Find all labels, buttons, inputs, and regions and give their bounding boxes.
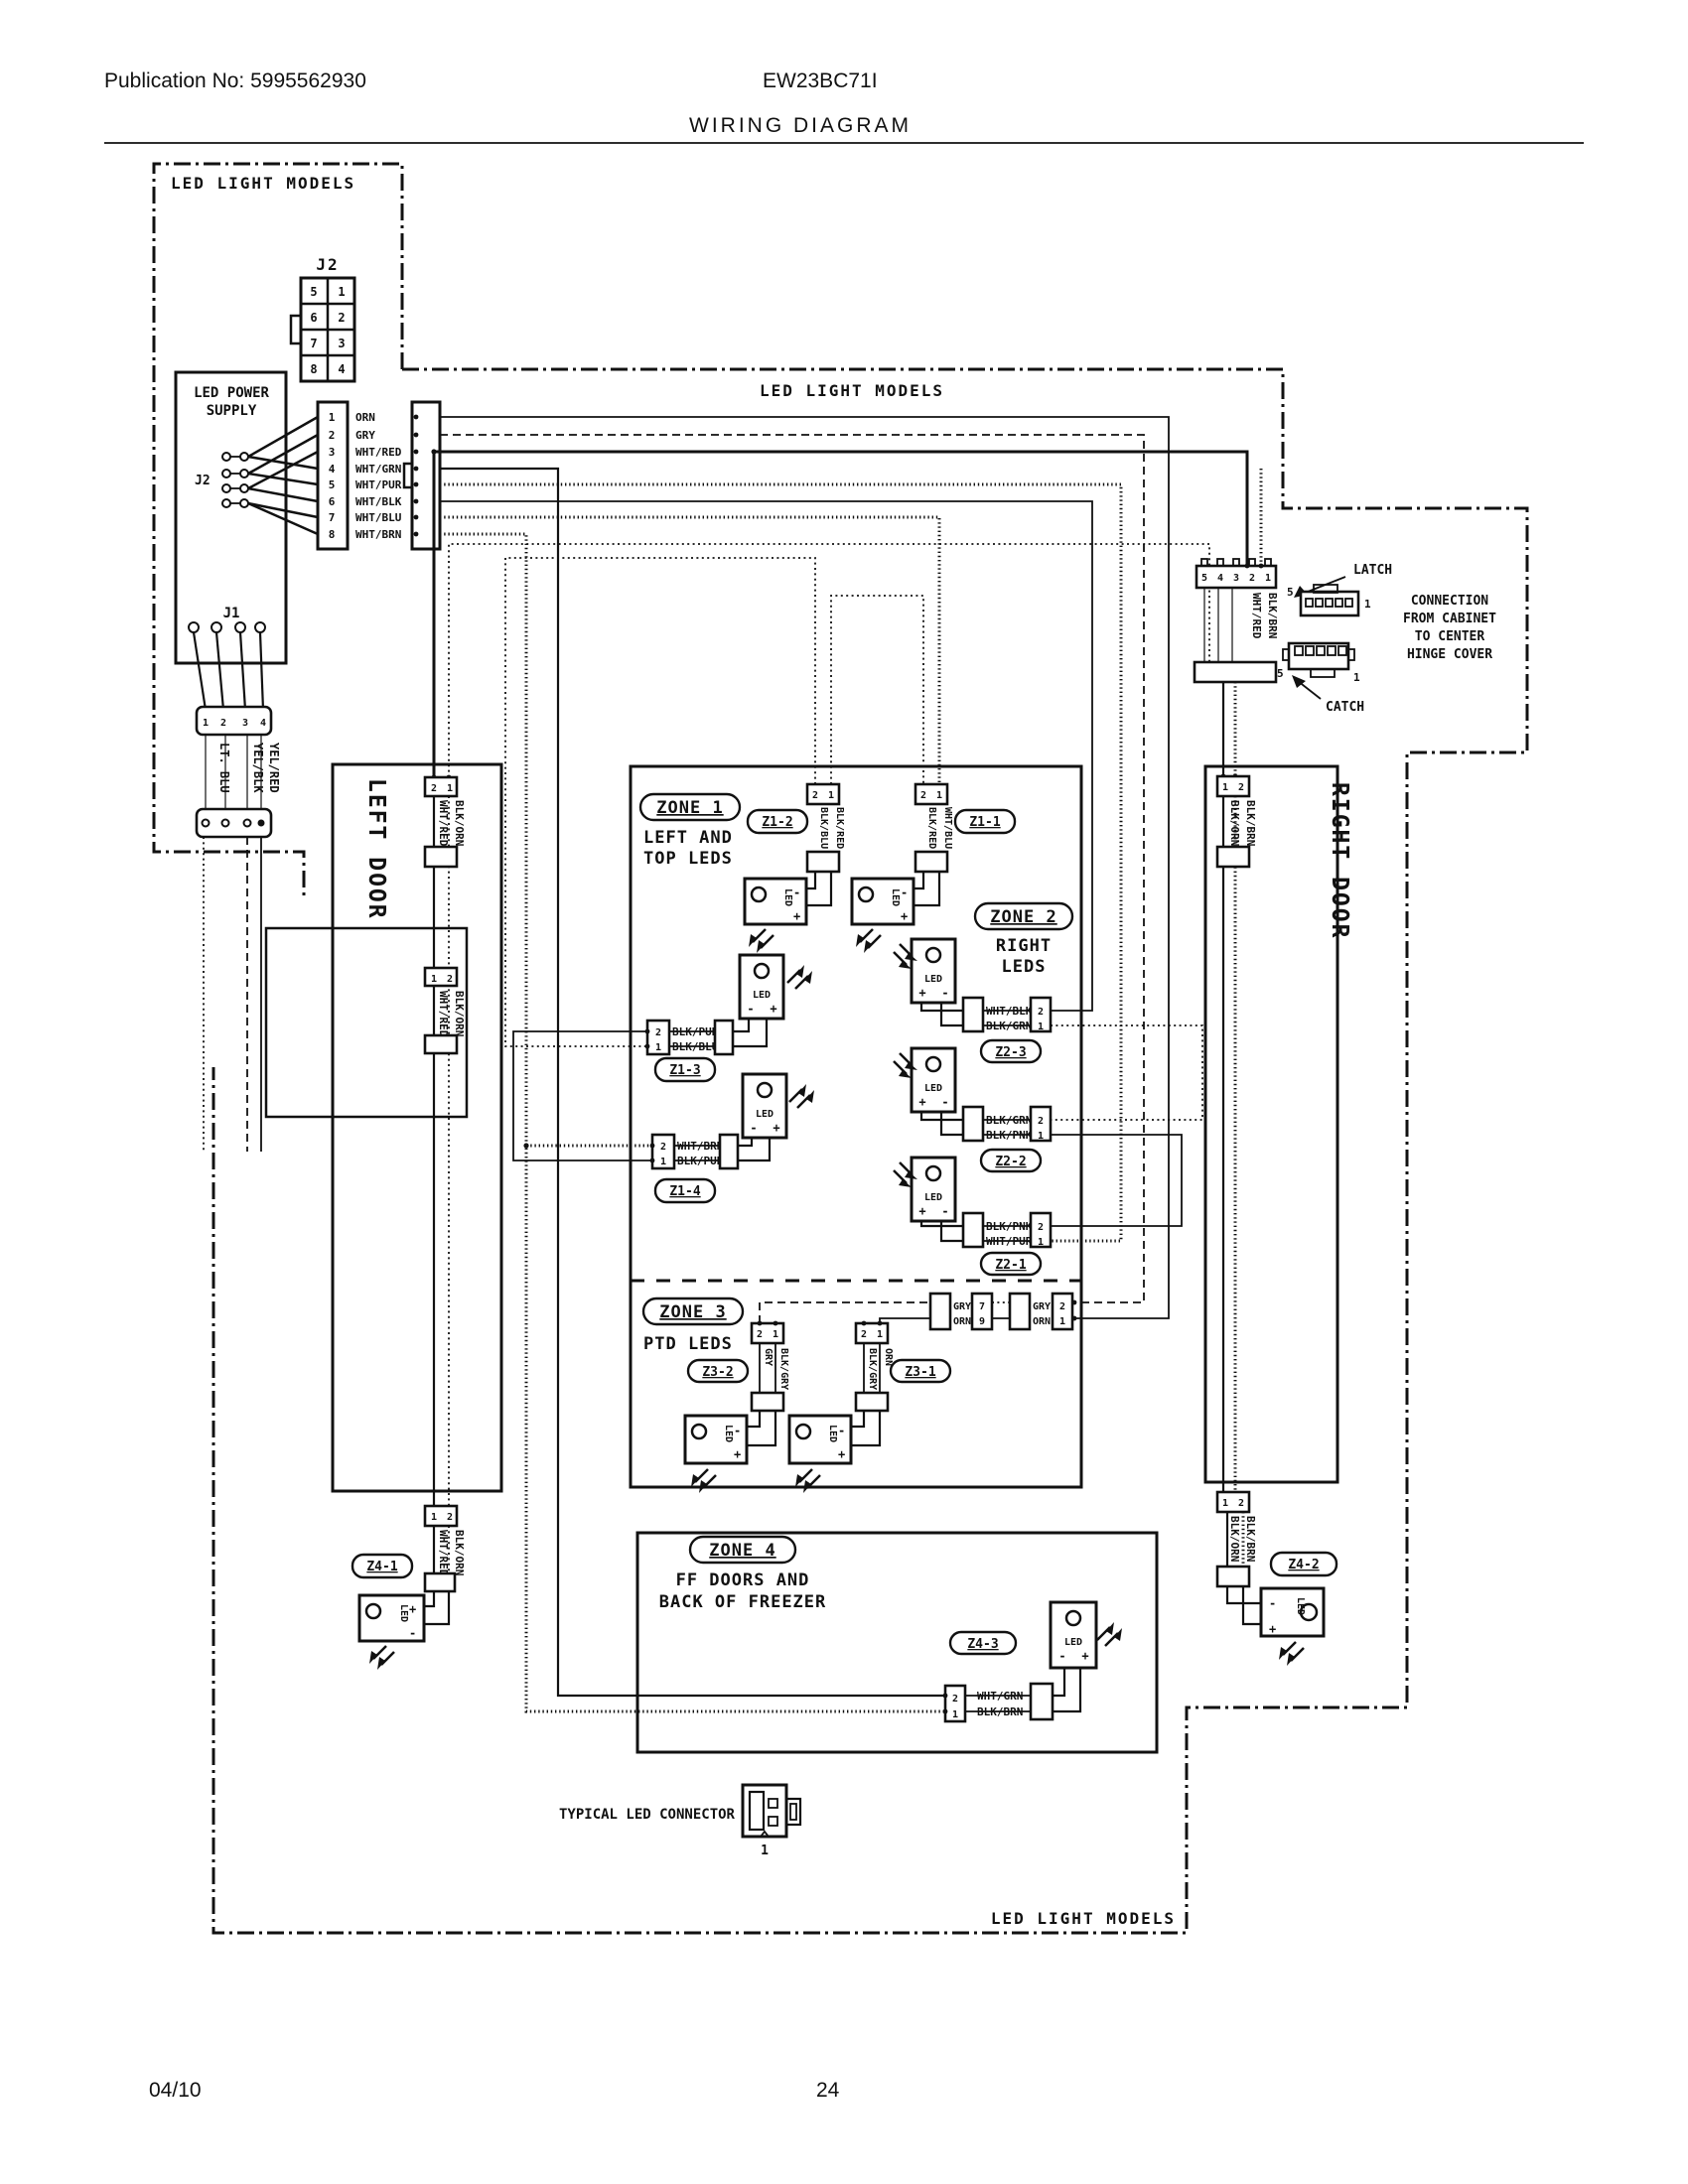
led-indicator-circle xyxy=(1066,1611,1080,1625)
connector-wire: BLK/BRN xyxy=(1244,1516,1257,1562)
led-minus: - xyxy=(941,1204,948,1218)
connector-id: Z1-2 xyxy=(762,815,792,830)
strip-pin: 8 xyxy=(329,528,336,541)
led-indicator-circle xyxy=(752,887,766,901)
connector-pin: 1 xyxy=(773,1329,778,1340)
supply-output-strip: 1 2 3 4 5 6 7 8 ORN GRY WHT/RED WHT/GRN … xyxy=(318,402,440,549)
j2-table-label: J2 xyxy=(316,255,339,274)
j1-wire-name: YEL/RED xyxy=(267,743,281,793)
connector-pin: 2 xyxy=(1238,1498,1244,1509)
connector-pin: 2 xyxy=(660,1142,666,1153)
supply-harness-wires xyxy=(431,417,1247,1711)
zone2-title: ZONE 2 RIGHT LEDS xyxy=(975,903,1072,977)
catch-label: CATCH xyxy=(1326,700,1364,715)
connector-wire: BLK/PNK xyxy=(986,1220,1033,1233)
led-indicator-circle xyxy=(926,1166,940,1180)
j1-wire-name: LT. BLU xyxy=(217,743,231,793)
page-title: WIRING DIAGRAM xyxy=(689,114,912,137)
j2-connector-table: J2 5 1 6 2 7 3 8 4 xyxy=(291,255,354,381)
footer-date: 04/10 xyxy=(149,2079,202,2102)
latch-pin1: 1 xyxy=(1364,598,1371,611)
connector-wire: WHT/BLK xyxy=(986,1005,1033,1018)
link-wires xyxy=(449,544,1209,1323)
led-indicator-circle xyxy=(796,1425,810,1438)
led-text: LED xyxy=(723,1425,734,1442)
led-text: LED xyxy=(398,1604,409,1622)
led-assembly-z2-2: LED + - BLK/GRN BLK/PNK 2 1 Z2-2 xyxy=(894,1048,1051,1171)
j2-cell: 6 xyxy=(310,311,317,325)
svg-text:ZONE 2: ZONE 2 xyxy=(990,907,1056,927)
connector-pin: 1 xyxy=(1038,1237,1044,1248)
connector-pin: 1 xyxy=(1222,1498,1228,1509)
connector-pin: 2 xyxy=(655,1027,661,1038)
led-assembly-z4-1: 1 2 WHT/RED BLK/ORN LED + - Z4-1 xyxy=(352,1506,466,1670)
connector-pin: 9 xyxy=(979,1316,985,1327)
region-label-top-center: LED LIGHT MODELS xyxy=(760,381,944,400)
connector-pin: 1 xyxy=(1038,1131,1044,1142)
connector-wire: BLK/PNK xyxy=(986,1129,1033,1142)
connector-wire: WHT/RED xyxy=(437,800,450,847)
connector-id: Z2-2 xyxy=(995,1155,1026,1169)
j2-cell: 4 xyxy=(338,362,345,376)
latch-pin5: 5 xyxy=(1287,586,1294,599)
region-label-top-left: LED LIGHT MODELS xyxy=(171,174,355,193)
ground-icon xyxy=(856,929,881,953)
connector-wire: BLK/RED xyxy=(926,807,937,849)
svg-text:FF DOORS AND: FF DOORS AND xyxy=(676,1570,810,1590)
hinge-pin: 4 xyxy=(1217,573,1223,584)
wire-name: WHT/GRN xyxy=(355,463,401,476)
led-text: LED xyxy=(924,1083,942,1094)
led-text: LED xyxy=(827,1425,838,1442)
connector-id: Z1-3 xyxy=(669,1063,700,1078)
typical-connector-pin: 1 xyxy=(761,1843,769,1858)
connector-pin: 1 xyxy=(660,1157,666,1167)
j1-pin: 1 xyxy=(203,718,209,729)
led-plus: + xyxy=(918,1204,925,1218)
ground-icon xyxy=(691,1469,716,1493)
led-assembly-z1-2: 2 1 BLK/BLU BLK/RED LED - + Z1-2 xyxy=(745,784,845,953)
left-door: LEFT DOOR 2 1 WHT/RED BLK/ORN 1 2 WHT/RE… xyxy=(266,764,501,1506)
wire-name: WHT/BLU xyxy=(355,511,402,524)
led-indicator-circle xyxy=(366,1604,380,1618)
connector-wire: GRY xyxy=(953,1301,971,1312)
connector-pin: 1 xyxy=(936,790,942,801)
svg-text:ZONE 1: ZONE 1 xyxy=(656,798,723,818)
ground-icon xyxy=(894,1053,917,1078)
strip-pin: 2 xyxy=(329,429,336,442)
connector-pin: 2 xyxy=(1038,1007,1044,1018)
connector-wire: WHT/RED xyxy=(437,1530,450,1576)
led-minus: - xyxy=(409,1626,416,1640)
led-indicator-circle xyxy=(859,887,873,901)
right-door: RIGHT DOOR 1 2 BLK/ORN BLK/BRN xyxy=(1205,766,1352,1492)
svg-text:RIGHT: RIGHT xyxy=(996,936,1052,956)
connector-pin: 1 xyxy=(655,1042,661,1053)
zone4: ZONE 4 FF DOORS AND BACK OF FREEZER Z4-3… xyxy=(637,1533,1157,1752)
connector-wire: BLK/GRN xyxy=(986,1020,1032,1032)
led-minus: - xyxy=(793,886,800,899)
led-plus: + xyxy=(409,1602,416,1616)
connector-pin: 1 xyxy=(877,1329,883,1340)
led-minus: - xyxy=(838,1424,845,1437)
led-minus: - xyxy=(941,986,948,1000)
svg-text:ZONE 3: ZONE 3 xyxy=(659,1302,726,1322)
connector-wire: GRY xyxy=(763,1348,774,1366)
led-indicator-circle xyxy=(692,1425,706,1438)
connector-pin: 2 xyxy=(447,1512,453,1523)
connector-pin: 1 xyxy=(1059,1316,1065,1327)
svg-text:HINGE COVER: HINGE COVER xyxy=(1407,647,1492,662)
svg-text:PTD LEDS: PTD LEDS xyxy=(643,1334,733,1354)
hinge-wire-name: BLK/BRN xyxy=(1266,593,1279,638)
connector-pin: 2 xyxy=(757,1329,763,1340)
strip-pin: 1 xyxy=(329,411,336,424)
j2-cell: 3 xyxy=(338,337,345,350)
connector-wire: BLK/ORN xyxy=(453,800,466,846)
connector-id: Z4-3 xyxy=(967,1637,998,1652)
led-text: LED xyxy=(924,1192,942,1203)
j2-pins-label: J2 xyxy=(195,474,211,488)
connector-id: Z1-1 xyxy=(969,815,1000,830)
led-minus: - xyxy=(901,886,908,899)
j1-wire-name: YEL/BLK xyxy=(251,743,265,793)
connector-wire: BLK/GRY xyxy=(778,1348,789,1390)
footer-page-number: 24 xyxy=(816,2079,840,2102)
wire-name: GRY xyxy=(355,429,375,442)
svg-text:BACK OF FREEZER: BACK OF FREEZER xyxy=(659,1592,827,1612)
harness-pin-dots xyxy=(414,415,419,537)
led-indicator-circle xyxy=(755,964,769,978)
power-supply-title2: SUPPLY xyxy=(207,403,257,419)
connector-pin: 1 xyxy=(431,1512,437,1523)
left-door-label: LEFT DOOR xyxy=(363,778,389,920)
connector-pin: 2 xyxy=(1238,782,1244,793)
j1-pin-circles xyxy=(189,622,265,632)
connector-pin: 2 xyxy=(952,1694,958,1705)
strip-pin: 4 xyxy=(329,463,336,476)
hinge-note: CONNECTION FROM CABINET TO CENTER HINGE … xyxy=(1403,594,1496,662)
catch-pin5: 5 xyxy=(1277,667,1284,680)
ground-icon xyxy=(787,965,812,989)
connector-wire: BLK/BLU xyxy=(818,807,829,849)
svg-text:FROM CABINET: FROM CABINET xyxy=(1403,612,1496,626)
led-plus: + xyxy=(918,986,925,1000)
connector-pin: 7 xyxy=(979,1301,985,1312)
led-text: LED xyxy=(924,974,942,985)
ground-icon xyxy=(894,944,917,969)
led-plus: + xyxy=(773,1121,779,1135)
led-minus: - xyxy=(1269,1596,1276,1610)
strip-pin: 7 xyxy=(329,511,336,524)
right-door-label: RIGHT DOOR xyxy=(1327,782,1352,939)
ground-icon xyxy=(1097,1622,1122,1646)
connector-wire: BLK/BRN xyxy=(977,1706,1023,1718)
led-assembly-z1-4: 2 1 WHT/BRN BLK/PUR LED - + Z1-4 xyxy=(650,1074,814,1202)
wire-name: WHT/PUR xyxy=(355,478,402,491)
led-minus: - xyxy=(1058,1649,1065,1663)
led-text: LED xyxy=(1064,1637,1082,1648)
strip-pin: 3 xyxy=(329,446,336,459)
j2-fanout-wires xyxy=(248,417,318,534)
connector-id: Z4-2 xyxy=(1288,1558,1319,1572)
led-text: LED xyxy=(890,888,901,906)
led-assembly-z2-1: LED + - BLK/PNK WHT/PUR 2 1 Z2-1 xyxy=(894,1158,1051,1275)
led-indicator-circle xyxy=(758,1083,772,1097)
connector-pin: 1 xyxy=(1038,1022,1044,1032)
led-plus: + xyxy=(1081,1649,1088,1663)
ground-icon xyxy=(369,1646,394,1670)
connector-pin: 1 xyxy=(447,783,453,794)
region-label-bottom: LED LIGHT MODELS xyxy=(991,1909,1176,1928)
power-supply-title: LED POWER xyxy=(194,385,269,401)
connector-wire: BLK/ORN xyxy=(453,991,466,1036)
j2-cell: 5 xyxy=(310,285,317,299)
connector-wire: GRY xyxy=(1033,1301,1051,1312)
catch-connector: 5 1 xyxy=(1277,643,1360,684)
connector-wire: BLK/BRN xyxy=(1244,800,1257,846)
connector-pin: 2 xyxy=(920,790,926,801)
j1-terminal-block: 1 2 3 4 LT. BLU YEL/BLK YEL/RED xyxy=(194,632,281,1152)
j2-cell: 7 xyxy=(310,337,317,350)
connector-wire: WHT/GRN xyxy=(977,1690,1023,1703)
hinge-pin: 3 xyxy=(1233,573,1239,584)
connector-pin: 2 xyxy=(861,1329,867,1340)
hinge-pin: 2 xyxy=(1249,573,1255,584)
wiring-diagram-page: Publication No: 5995562930 EW23BC71I WIR… xyxy=(0,0,1688,2184)
svg-text:TOP LEDS: TOP LEDS xyxy=(643,849,733,869)
connector-pin: 2 xyxy=(1038,1222,1044,1233)
ground-icon xyxy=(1279,1642,1304,1666)
connector-pin: 2 xyxy=(1059,1301,1065,1312)
connector-pin: 2 xyxy=(431,783,437,794)
connector-pin: 1 xyxy=(952,1709,958,1720)
led-minus: - xyxy=(941,1095,948,1109)
led-assembly-z1-3: 2 1 BLK/PUR BLK/BLU LED - + Z1-3 xyxy=(645,955,812,1081)
connector-pin: 1 xyxy=(431,974,437,985)
j2-pin-circles xyxy=(222,453,248,507)
connector-wire: WHT/PUR xyxy=(986,1235,1033,1248)
zone1-title: ZONE 1 LEFT AND TOP LEDS xyxy=(640,794,740,869)
wire-name: WHT/BLK xyxy=(355,495,402,508)
connector-wire: BLK/ORN xyxy=(1228,800,1241,846)
led-text: LED xyxy=(756,1109,774,1120)
svg-text:TO CENTER: TO CENTER xyxy=(1415,629,1485,644)
zone3-inline-connectors: GRY ORN 7 9 GRY ORN 2 1 xyxy=(930,1294,1076,1329)
led-assembly-z4-3: Z4-3 LED - + 2 1 WHT/GRN BLK/BRN xyxy=(943,1602,1122,1721)
led-assembly-z3-1: 2 1 BLK/GRY ORN LED - + Z3-1 xyxy=(789,1321,950,1493)
led-power-supply: LED POWER SUPPLY J2 J1 xyxy=(176,372,318,663)
connector-id: Z2-3 xyxy=(995,1045,1026,1060)
hinge-pin: 1 xyxy=(1265,573,1271,584)
ground-icon xyxy=(894,1162,917,1187)
led-plus: + xyxy=(793,909,800,923)
svg-text:ZONE 4: ZONE 4 xyxy=(709,1541,775,1561)
ground-icon xyxy=(749,929,774,953)
led-plus: + xyxy=(1269,1622,1276,1636)
strip-pin: 6 xyxy=(329,495,336,508)
hinge-cover-connection: 5 4 3 2 1 WHT/RED BLK/BRN LATCH 5 1 xyxy=(1195,469,1496,776)
led-plus: + xyxy=(838,1447,845,1461)
hinge-wire-name: WHT/RED xyxy=(1250,593,1263,639)
j1-pin: 2 xyxy=(220,718,226,729)
led-text: LED xyxy=(782,888,793,906)
page-header: Publication No: 5995562930 EW23BC71I WIR… xyxy=(104,69,1584,143)
j2-cell: 2 xyxy=(338,311,345,325)
connector-wire: WHT/BLU xyxy=(942,807,953,849)
latch-label: LATCH xyxy=(1353,563,1392,578)
connector-pin: 1 xyxy=(1222,782,1228,793)
led-plus: + xyxy=(918,1095,925,1109)
led-minus: - xyxy=(734,1424,741,1437)
wire-name: WHT/RED xyxy=(355,446,402,459)
connector-wire: BLK/GRN xyxy=(986,1114,1032,1127)
j1-label: J1 xyxy=(223,606,240,621)
typical-led-connector: TYPICAL LED CONNECTOR 1 xyxy=(559,1785,800,1858)
connector-pin: 2 xyxy=(1038,1116,1044,1127)
svg-text:LEFT AND: LEFT AND xyxy=(643,828,733,848)
connector-wire: ORN xyxy=(883,1348,894,1366)
connector-wire: BLK/ORN xyxy=(453,1530,466,1575)
connector-wire: BLK/GRY xyxy=(867,1348,878,1390)
svg-text:CONNECTION: CONNECTION xyxy=(1411,594,1488,609)
connector-wire: WHT/RED xyxy=(437,991,450,1037)
led-indicator-circle xyxy=(926,1057,940,1071)
zone3-title: ZONE 3 PTD LEDS xyxy=(643,1298,743,1354)
led-plus: + xyxy=(734,1447,741,1461)
catch-pin1: 1 xyxy=(1353,671,1360,684)
hinge-pin: 5 xyxy=(1201,573,1207,584)
led-text: LED xyxy=(753,990,771,1001)
connector-id: Z3-1 xyxy=(905,1365,935,1380)
svg-text:LEDS: LEDS xyxy=(1002,957,1047,977)
led-plus: + xyxy=(901,909,908,923)
j1-pin: 3 xyxy=(242,718,248,729)
connector-pin: 2 xyxy=(447,974,453,985)
led-minus: - xyxy=(747,1002,754,1016)
ground-icon xyxy=(795,1469,820,1493)
connector-wire: BLK/RED xyxy=(834,807,845,849)
connector-wire: BLK/ORN xyxy=(1228,1516,1241,1562)
wire-name: WHT/BRN xyxy=(355,528,401,541)
led-plus: + xyxy=(770,1002,776,1016)
ground-icon xyxy=(789,1084,814,1108)
connector-pin: 2 xyxy=(812,790,818,801)
connector-wire: ORN xyxy=(953,1316,971,1327)
j1-pin: 4 xyxy=(260,718,266,729)
wire-name: ORN xyxy=(355,411,375,424)
page-footer: 04/10 24 xyxy=(149,2079,840,2102)
led-indicator-circle xyxy=(926,948,940,962)
led-assembly-z4-2: 1 2 BLK/ORN BLK/BRN - + LED Z4-2 xyxy=(1217,1492,1336,1666)
strip-pin: 5 xyxy=(329,478,336,491)
connector-wire: ORN xyxy=(1033,1316,1051,1327)
j2-cell: 8 xyxy=(310,362,317,376)
model-number: EW23BC71I xyxy=(763,69,878,92)
connector-pin: 1 xyxy=(828,790,834,801)
typical-led-connector-label: TYPICAL LED CONNECTOR xyxy=(559,1807,736,1823)
connector-id: Z3-2 xyxy=(702,1365,733,1380)
connector-id: Z2-1 xyxy=(995,1258,1026,1273)
j2-cell: 1 xyxy=(338,285,345,299)
publication-number: Publication No: 5995562930 xyxy=(104,69,366,92)
connector-id: Z4-1 xyxy=(366,1560,397,1574)
connector-id: Z1-4 xyxy=(669,1184,700,1199)
led-minus: - xyxy=(750,1121,757,1135)
